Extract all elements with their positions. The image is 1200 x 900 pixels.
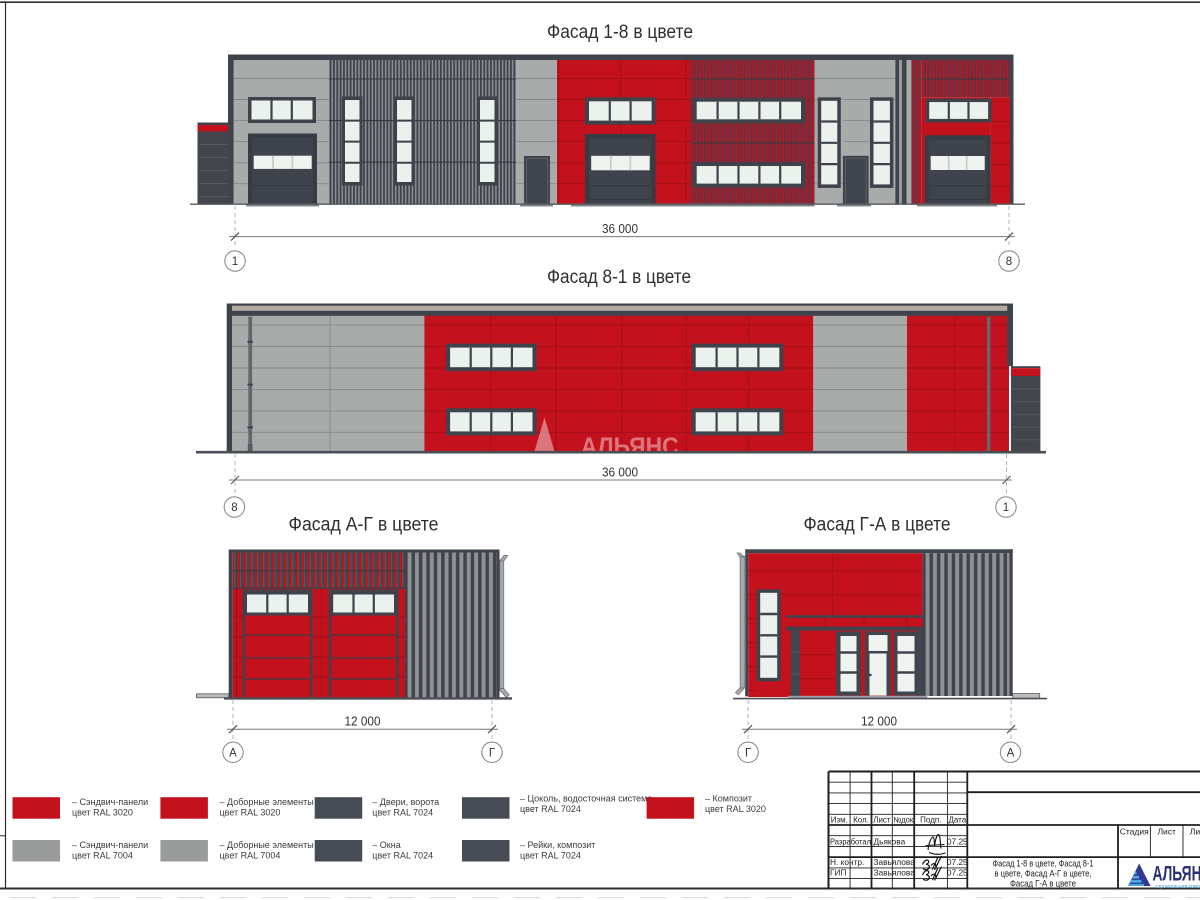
svg-text:Разработал: Разработал bbox=[830, 837, 871, 847]
svg-text:07.25: 07.25 bbox=[947, 868, 968, 878]
svg-text:– Двери, ворота: – Двери, ворота bbox=[372, 797, 439, 807]
svg-text:АЛЬЯНС: АЛЬЯНС bbox=[1153, 863, 1200, 886]
svg-text:№док: №док bbox=[893, 815, 913, 824]
svg-text:Лист: Лист bbox=[1190, 827, 1200, 837]
svg-text:1: 1 bbox=[1003, 502, 1009, 514]
svg-text:Фасад 1-8 в цвете: Фасад 1-8 в цвете bbox=[547, 22, 693, 43]
svg-text:А: А bbox=[1007, 748, 1015, 760]
svg-text:Завьялова: Завьялова bbox=[874, 868, 916, 878]
svg-text:Лист: Лист bbox=[873, 815, 891, 824]
svg-text:Подп.: Подп. bbox=[920, 815, 941, 824]
svg-text:цвет RAL 7024: цвет RAL 7024 bbox=[520, 804, 581, 814]
svg-text:07.25: 07.25 bbox=[947, 857, 968, 867]
svg-text:12 000: 12 000 bbox=[345, 715, 381, 729]
svg-text:Г: Г bbox=[745, 748, 752, 760]
svg-text:Кол.: Кол. bbox=[853, 815, 869, 824]
svg-text:36 000: 36 000 bbox=[602, 222, 638, 236]
svg-text:– Окна: – Окна bbox=[372, 840, 400, 850]
svg-text:цвет RAL 7004: цвет RAL 7004 bbox=[220, 851, 281, 861]
svg-text:цвет RAL 3020: цвет RAL 3020 bbox=[72, 808, 133, 818]
svg-text:36 000: 36 000 bbox=[602, 465, 638, 479]
svg-text:Фасад 1-8 в цвете, Фасад 8-1: Фасад 1-8 в цвете, Фасад 8-1 bbox=[993, 859, 1094, 869]
svg-text:8: 8 bbox=[1006, 256, 1012, 268]
svg-text:цвет RAL 3020: цвет RAL 3020 bbox=[220, 808, 281, 818]
svg-text:в цвете, Фасад А-Г в цвете,: в цвете, Фасад А-Г в цвете, bbox=[995, 869, 1092, 879]
svg-text:цвет RAL 7004: цвет RAL 7004 bbox=[72, 851, 133, 861]
svg-text:Стадия: Стадия bbox=[1120, 827, 1149, 837]
svg-text:Г: Г bbox=[489, 748, 496, 760]
svg-text:– Сэндвич-панели: – Сэндвич-панели bbox=[72, 797, 148, 807]
svg-text:А: А bbox=[229, 748, 237, 760]
svg-text:1: 1 bbox=[232, 256, 238, 268]
svg-text:12 000: 12 000 bbox=[861, 715, 897, 729]
svg-text:Фасад Г-А в цвете: Фасад Г-А в цвете bbox=[1010, 879, 1076, 889]
svg-text:цвет RAL 7024: цвет RAL 7024 bbox=[520, 851, 581, 861]
svg-text:Дата: Дата bbox=[948, 815, 966, 824]
svg-text:– Сэндвич-панели: – Сэндвич-панели bbox=[72, 840, 148, 850]
svg-text:Фасад 8-1 в цвете: Фасад 8-1 в цвете bbox=[547, 267, 691, 288]
svg-text:07.25: 07.25 bbox=[947, 837, 968, 847]
svg-text:Фасад А-Г в цвете: Фасад А-Г в цвете bbox=[289, 515, 439, 536]
svg-text:ГИП: ГИП bbox=[830, 868, 846, 878]
svg-text:АЛЬЯНС: АЛЬЯНС bbox=[581, 433, 679, 461]
svg-text:– Доборные элементы: – Доборные элементы bbox=[220, 840, 314, 850]
svg-text:Завьялова: Завьялова bbox=[874, 857, 916, 867]
svg-text:– Композит: – Композит bbox=[705, 793, 752, 803]
svg-text:– Доборные элементы: – Доборные элементы bbox=[220, 797, 314, 807]
svg-text:Фасад Г-А в цвете: Фасад Г-А в цвете bbox=[804, 515, 951, 536]
svg-text:цвет RAL 3020: цвет RAL 3020 bbox=[705, 804, 766, 814]
svg-text:строительная компания: строительная компания bbox=[1156, 884, 1200, 890]
svg-text:цвет RAL 7024: цвет RAL 7024 bbox=[372, 808, 433, 818]
svg-text:– Рейки, композит: – Рейки, композит bbox=[520, 840, 595, 850]
svg-text:Лист: Лист bbox=[1157, 827, 1176, 837]
svg-text:Н. контр.: Н. контр. bbox=[830, 857, 864, 867]
svg-text:Изм.: Изм. bbox=[831, 815, 848, 824]
svg-text:8: 8 bbox=[231, 502, 237, 514]
svg-text:цвет RAL 7024: цвет RAL 7024 bbox=[372, 851, 433, 861]
svg-text:Дьякова: Дьякова bbox=[874, 837, 906, 847]
svg-text:– Цоколь, водосточная система: – Цоколь, водосточная система bbox=[520, 793, 652, 803]
